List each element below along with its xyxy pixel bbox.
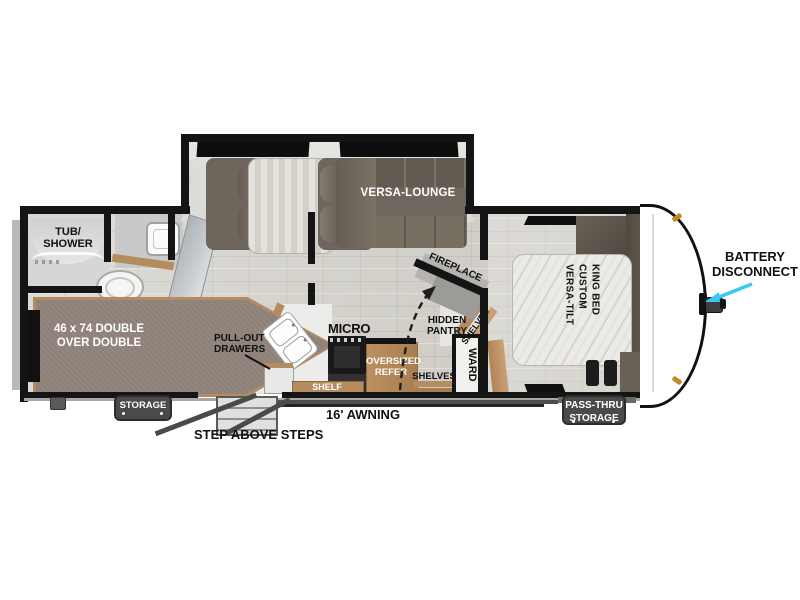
slideout-wall-right — [466, 134, 474, 214]
pantry-line1: HIDDEN — [428, 315, 466, 326]
stabilizer-jack — [50, 397, 66, 410]
wall-rear — [20, 206, 28, 402]
pullout-cabinet-trim — [264, 363, 293, 368]
badge-dot — [122, 412, 125, 415]
sofa-chaise — [336, 158, 376, 248]
range-grill-dots — [330, 338, 364, 342]
tub-shower-label: TUB/ SHOWER — [33, 226, 103, 250]
slideout-window-left — [196, 142, 309, 157]
pullout-line1: PULL-OUT — [214, 333, 265, 344]
bed-speaker — [604, 360, 617, 386]
battery-line1: BATTERY — [725, 249, 785, 264]
storage-badge: STORAGE — [114, 395, 172, 421]
step-above-steps-label: STEP ABOVE STEPS — [194, 428, 316, 442]
sofa-back-cushions — [376, 158, 467, 188]
battery-line2: DISCONNECT — [712, 264, 798, 279]
bedroom-wall-upper — [480, 212, 488, 260]
storage-badge-label: STORAGE — [120, 400, 167, 411]
pull-out-drawers-label: PULL-OUT DRAWERS — [214, 333, 262, 355]
toilet-seat-ring — [105, 277, 135, 299]
oversized-refer-label: OVERSIZED REFER — [366, 356, 416, 378]
wall-top-right — [465, 206, 655, 214]
floorplan-canvas: VERSA-LOUNGE TUB/ SHOWER 46 x 74 DOUBLE … — [0, 0, 800, 600]
bed-speaker — [586, 360, 599, 386]
awning-label: 16' AWNING — [322, 408, 404, 422]
refer-line1: OVERSIZED — [366, 356, 421, 367]
tub-faucet-dots — [35, 260, 61, 264]
tub-shower-line2: SHOWER — [43, 238, 93, 250]
hitch-cap — [720, 299, 726, 309]
refer-top-strip — [366, 338, 416, 344]
bath-bottom-wall — [24, 286, 102, 293]
micro-label: MICRO — [328, 322, 370, 336]
slideout-window-right — [339, 142, 458, 157]
bed-bench — [620, 352, 642, 392]
pullout-line2: DRAWERS — [214, 344, 265, 355]
hall-wall-lower — [308, 283, 315, 305]
king-bed-col1: VERSA-TILT — [564, 264, 575, 356]
versa-lounge-sofa — [336, 158, 467, 248]
pantry-line2: PANTRY — [427, 326, 467, 337]
vanity-stub-wall — [168, 212, 175, 260]
king-bed-col2: CUSTOM — [577, 264, 588, 356]
tub-shower-line1: TUB/ — [55, 226, 81, 238]
rear-bumper — [12, 220, 20, 390]
badge-dot — [612, 420, 615, 423]
shelves-lower-label: SHELVES — [412, 372, 456, 382]
slideout-wall-top — [181, 134, 474, 142]
bunk-line2: OVER DOUBLE — [57, 337, 141, 349]
refer-line2: REFER — [375, 367, 407, 378]
king-bed-col3: KING BED — [590, 264, 601, 356]
versa-lounge-label: VERSA-LOUNGE — [356, 187, 460, 200]
slideout-wall-left — [181, 134, 189, 214]
bunk-line1: 46 x 74 DOUBLE — [54, 323, 144, 335]
pass-thru-line2: STORAGE — [569, 413, 618, 424]
battery-disconnect-label: BATTERY DISCONNECT — [710, 249, 800, 279]
closet-label: CLOSET — [630, 218, 650, 270]
pass-thru-line1: PASS-THRU — [565, 400, 623, 411]
bath-divider-wall — [104, 212, 111, 262]
overhead-label: OVERHEAD — [630, 282, 650, 358]
badge-dot — [160, 412, 163, 415]
bunk-bed-label: 46 x 74 DOUBLE OVER DOUBLE — [44, 322, 154, 350]
king-bed-label: VERSA-TILT CUSTOM KING BED — [548, 264, 616, 356]
nose-inner-line — [652, 214, 654, 392]
sofa-seat-cushions — [376, 216, 467, 248]
hall-wall-upper — [308, 212, 315, 264]
range-glass — [334, 346, 360, 368]
badge-dot — [572, 420, 575, 423]
bunk-headboard — [28, 310, 40, 382]
hidden-pantry-label: HIDDEN PANTRY — [424, 315, 470, 337]
pullout-drawers-cabinet — [264, 366, 294, 394]
